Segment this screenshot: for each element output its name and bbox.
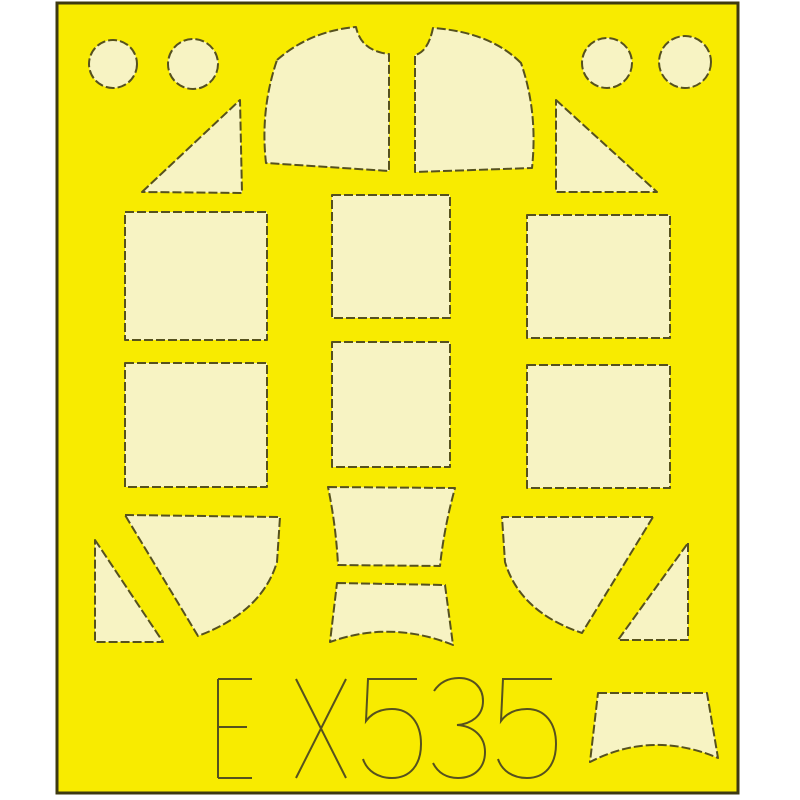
- mask-square-left-bottom: [125, 363, 267, 487]
- mask-square-right-top: [527, 215, 670, 338]
- mask-circle-top-right-2: [659, 36, 711, 88]
- mask-circle-top-right-1: [582, 38, 632, 88]
- mask-sheet: [0, 0, 800, 800]
- mask-trapezoid-middle-upper: [328, 487, 455, 566]
- product-image: [0, 0, 800, 800]
- mask-square-middle-bottom: [332, 342, 450, 467]
- mask-circle-top-left-2: [168, 39, 218, 89]
- mask-square-middle-top: [332, 195, 450, 318]
- mask-square-left-top: [125, 212, 267, 340]
- mask-circle-top-left-1: [89, 40, 137, 88]
- mask-square-right-bottom: [527, 365, 670, 488]
